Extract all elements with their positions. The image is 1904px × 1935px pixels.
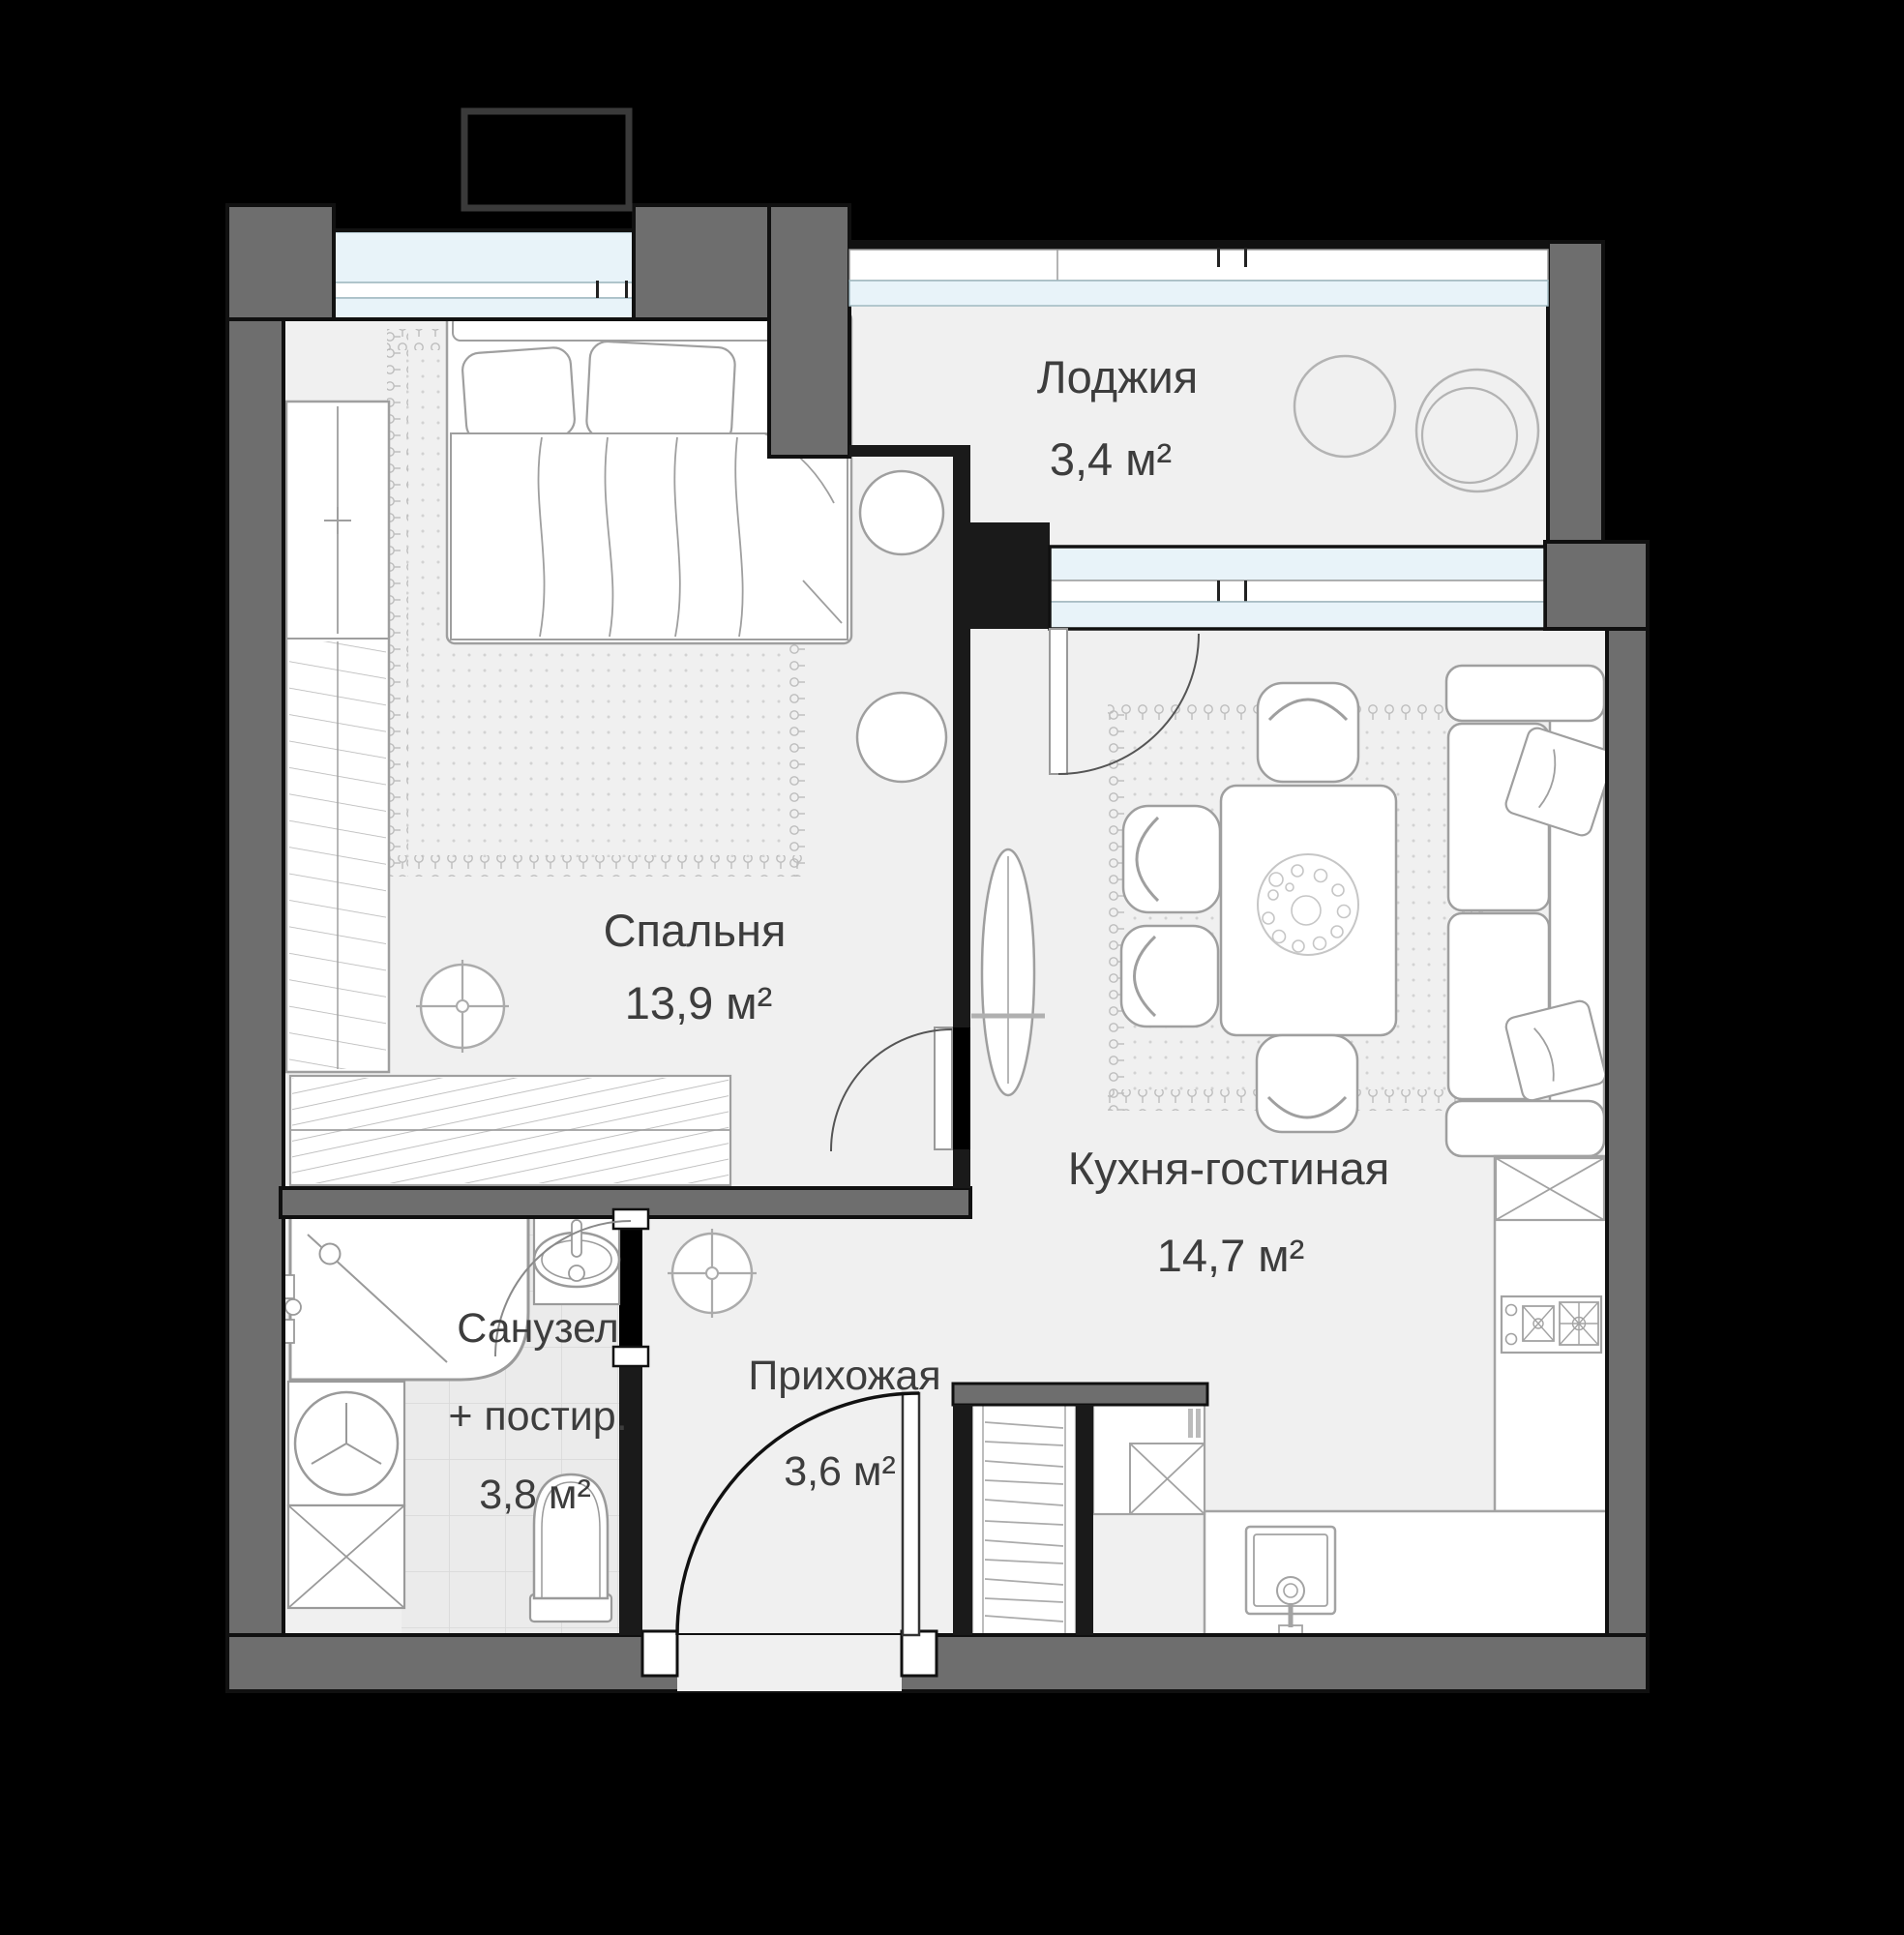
partition-wardrobe-left	[953, 1405, 972, 1635]
bathroom-sink-icon	[534, 1217, 619, 1304]
loggia-area: 3,4 м²	[1050, 433, 1172, 485]
partition-nook-top	[849, 445, 970, 457]
wall-wardrobe-cap	[953, 1384, 1207, 1405]
dining-table	[1221, 786, 1396, 1035]
kitchen-label: Кухня-гостиная	[1068, 1143, 1390, 1194]
chair	[1123, 806, 1220, 912]
hallway-wardrobe	[972, 1405, 1076, 1635]
wall-top-left	[227, 205, 334, 319]
blanket	[451, 433, 848, 640]
partition-bedroom-kitchen	[953, 445, 970, 1027]
duct-cabinet	[1093, 1405, 1205, 1514]
bedside-table	[860, 471, 943, 554]
bathroom-label-2: + постир.	[448, 1393, 627, 1440]
shower-icon	[283, 1217, 528, 1380]
sofa	[1446, 666, 1616, 1156]
chair	[1257, 1035, 1357, 1132]
chair	[1121, 926, 1218, 1027]
chair	[1258, 683, 1358, 782]
wall-loggia-right	[1548, 242, 1603, 547]
wall-left	[227, 205, 283, 1691]
hallway-label: Прихожая	[748, 1353, 940, 1399]
pillow	[585, 341, 735, 445]
floor-plan: Спальня 13,9 м² Лоджия 3,4 м² Кухня-гост…	[0, 0, 1904, 1935]
loggia-kitchen-glazing	[1050, 547, 1545, 629]
wardrobe	[286, 402, 389, 1072]
bedside-table	[857, 693, 946, 782]
dresser	[290, 1076, 730, 1185]
bathroom-label: Санузел	[457, 1305, 619, 1352]
wall-step-top-right	[1545, 542, 1648, 629]
wall-top-right-of-window	[634, 205, 769, 319]
washing-machine-icon	[288, 1382, 404, 1505]
pillow	[461, 346, 576, 443]
wall-right	[1607, 629, 1648, 1691]
kitchen-area: 14,7 м²	[1157, 1230, 1305, 1281]
hallway-area: 3,6 м²	[784, 1448, 896, 1495]
loggia-railing	[849, 240, 1548, 306]
bathroom-duct-icon	[288, 1505, 404, 1608]
wall-bedroom-loggia	[769, 205, 849, 457]
partition-bedroom-kitchen	[953, 1149, 970, 1188]
partition-wardrobe-right	[1076, 1405, 1093, 1635]
window-exterior-bay	[464, 111, 629, 208]
loggia-label: Лоджия	[1037, 351, 1199, 402]
entrance-opening	[677, 1635, 902, 1691]
floor-plan-page: Спальня 13,9 м² Лоджия 3,4 м² Кухня-гост…	[0, 0, 1904, 1935]
bedroom-area: 13,9 м²	[625, 977, 773, 1028]
partition-balcony-stub	[970, 522, 1050, 629]
bathroom-area: 3,8 м²	[479, 1472, 591, 1518]
bedroom-label: Спальня	[604, 905, 787, 956]
